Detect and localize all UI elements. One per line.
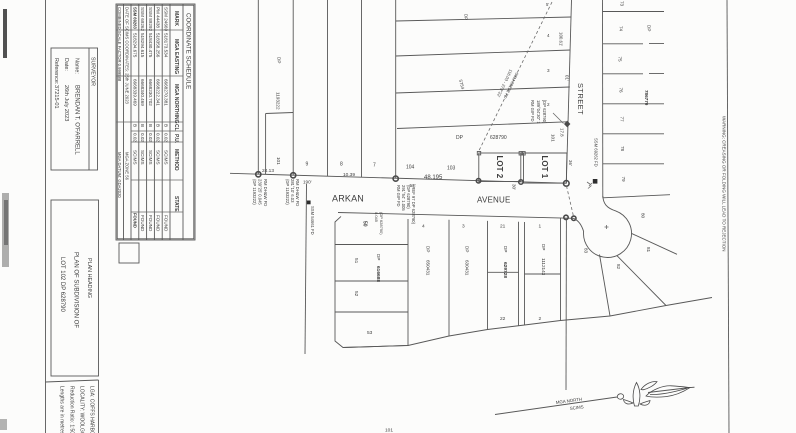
- svg-text:52: 52: [353, 291, 359, 297]
- svg-text:MGA ZONE 56: MGA ZONE 56: [125, 152, 130, 181]
- svg-text:(DP 628790): (DP 628790): [406, 185, 411, 209]
- svg-text:77: 77: [620, 117, 625, 123]
- svg-text:LOT 102 DP 628790: LOT 102 DP 628790: [59, 257, 65, 312]
- svg-text:291°54' 1.005: 291°54' 1.005: [401, 185, 406, 211]
- svg-text:5': 5': [546, 2, 549, 7]
- svg-text:DP: DP: [541, 244, 546, 250]
- svg-text:DP: DP: [464, 14, 469, 20]
- svg-text:5754: 5754: [458, 79, 466, 90]
- svg-text:Name:: Name:: [74, 58, 80, 74]
- svg-text:21: 21: [500, 224, 506, 230]
- svg-text:MARK: MARK: [173, 11, 179, 26]
- svg-text:1: 1: [539, 224, 542, 230]
- svg-text:53: 53: [367, 330, 373, 336]
- svg-text:SCIMS: SCIMS: [569, 404, 584, 411]
- svg-text:SCIMS: SCIMS: [132, 150, 137, 165]
- svg-text:LOT 1: LOT 1: [540, 156, 549, 179]
- svg-text:Reduction Ratio: 1:500: Reduction Ratio: 1:500: [69, 386, 75, 433]
- svg-text:10.39: 10.39: [343, 172, 355, 178]
- svg-text:0.02: 0.02: [164, 133, 169, 142]
- svg-text:4: 4: [422, 224, 425, 230]
- svg-text:STREET: STREET: [576, 83, 585, 115]
- svg-text:101: 101: [551, 134, 556, 142]
- svg-text:650431: 650431: [426, 260, 431, 276]
- svg-text:81: 81: [646, 247, 651, 253]
- svg-text:518294.615: 518294.615: [140, 33, 145, 58]
- svg-text:100.61': 100.61': [559, 32, 564, 46]
- svg-text:104: 104: [406, 165, 415, 171]
- svg-text:7: 7: [373, 163, 376, 169]
- svg-text:6668340.469: 6668340.469: [140, 79, 145, 106]
- svg-text:SCIMS: SCIMS: [164, 150, 169, 165]
- svg-text:82: 82: [616, 264, 621, 270]
- svg-text:239°25' 0.045: 239°25' 0.045: [258, 179, 263, 205]
- svg-text:MGA NORTHING: MGA NORTHING: [173, 84, 179, 124]
- svg-text:189°04'30" 1: 189°04'30" 1: [536, 100, 541, 124]
- svg-text:0.02: 0.02: [156, 133, 161, 142]
- svg-text:WARNING: CREASING OR FOLDING W: WARNING: CREASING OR FOLDING WILL LEAD T…: [722, 116, 727, 252]
- svg-text:MGA DATUM: GDA2020: MGA DATUM: GDA2020: [117, 152, 122, 198]
- svg-text:PLAN OF SUBDIVISION OF: PLAN OF SUBDIVISION OF: [72, 252, 78, 328]
- svg-text:PLAN HEADING: PLAN HEADING: [86, 258, 92, 298]
- svg-text:73: 73: [620, 1, 625, 7]
- svg-text:3: 3: [547, 68, 550, 73]
- svg-text:SCIMS: SCIMS: [156, 150, 161, 165]
- svg-text:190': 190': [303, 180, 312, 185]
- svg-text:6668270.381: 6668270.381: [164, 79, 169, 106]
- svg-text:DP: DP: [647, 25, 652, 31]
- svg-text:101: 101: [276, 157, 281, 165]
- svg-text:SSM 89292: SSM 89292: [148, 7, 153, 31]
- svg-text:17.8: 17.8: [560, 128, 565, 137]
- svg-text:4: 4: [547, 33, 550, 38]
- svg-text:Lengths are in metres.: Lengths are in metres.: [59, 386, 65, 433]
- svg-text:DP: DP: [277, 57, 282, 63]
- svg-text:76: 76: [619, 88, 624, 94]
- svg-text:6668339.469: 6668339.469: [132, 79, 137, 106]
- svg-text:78: 78: [620, 146, 625, 152]
- svg-text:SSM 69263: SSM 69263: [132, 7, 137, 30]
- svg-text:(REF 97 DP 628790): (REF 97 DP 628790): [411, 185, 416, 225]
- svg-text:1193222: 1193222: [276, 92, 281, 110]
- svg-text:FOUND: FOUND: [148, 215, 153, 232]
- svg-text:Reference:: Reference:: [53, 58, 59, 84]
- svg-text:RM GIP FD: RM GIP FD: [530, 100, 535, 122]
- svg-text:SURVEYOR: SURVEYOR: [89, 57, 95, 86]
- svg-text:9: 9: [306, 162, 309, 168]
- svg-text:B: B: [132, 124, 137, 127]
- svg-text:FOUND: FOUND: [140, 215, 145, 232]
- svg-text:50: 50: [362, 221, 368, 227]
- svg-text:FOUND: FOUND: [132, 213, 137, 228]
- svg-text:CL: CL: [173, 124, 179, 131]
- svg-text:BRENDAN T. O'FARRELL: BRENDAN T. O'FARRELL: [73, 85, 79, 155]
- svg-text:786779: 786779: [644, 90, 649, 106]
- svg-text:616688: 616688: [375, 266, 381, 282]
- svg-text:01': 01': [565, 75, 570, 81]
- svg-text:0.02: 0.02: [132, 133, 137, 142]
- svg-text:STATE: STATE: [173, 196, 179, 212]
- svg-text:2: 2: [539, 316, 542, 322]
- svg-text:22: 22: [500, 316, 506, 322]
- svg-text:DATE OF SCIMS COORDINATES: 25t: DATE OF SCIMS COORDINATES: 25th JUNE 202…: [125, 7, 130, 105]
- svg-text:518173.534: 518173.534: [164, 33, 169, 58]
- svg-text:FOUND: FOUND: [164, 215, 169, 232]
- svg-text:37215-01: 37215-01: [53, 85, 59, 109]
- svg-text:629728: 629728: [502, 262, 508, 278]
- svg-text:COORDINATE SCHEDULE: COORDINATE SCHEDULE: [185, 13, 192, 89]
- svg-text:SCIMS: SCIMS: [140, 150, 145, 165]
- svg-text:SSM 24669: SSM 24669: [164, 7, 169, 31]
- svg-text:DP: DP: [465, 246, 470, 252]
- svg-text:83: 83: [584, 248, 589, 254]
- svg-text:36': 36': [568, 160, 573, 166]
- svg-text:B: B: [148, 124, 153, 127]
- svg-text:MGA EASTING: MGA EASTING: [173, 39, 179, 74]
- svg-text:RM GIP FD: RM GIP FD: [396, 185, 401, 207]
- svg-text:26th July 2023: 26th July 2023: [63, 85, 69, 121]
- svg-text:RM DH&W FD: RM DH&W FD: [263, 179, 268, 206]
- svg-text:DP: DP: [503, 246, 508, 252]
- svg-text:METHOD: METHOD: [173, 149, 179, 171]
- svg-text:3: 3: [462, 224, 465, 230]
- svg-text:SSM 69262 FD: SSM 69262 FD: [594, 138, 599, 167]
- svg-text:103: 103: [447, 166, 456, 172]
- svg-text:DP: DP: [426, 246, 431, 252]
- svg-text:FOUND: FOUND: [156, 215, 161, 232]
- svg-text:24.13: 24.13: [262, 168, 274, 174]
- svg-text:80: 80: [641, 213, 646, 219]
- svg-text:COMBINED SCALE FACTOR 0.999588: COMBINED SCALE FACTOR 0.999588: [117, 7, 122, 82]
- svg-text:(DP 1193222): (DP 1193222): [252, 179, 257, 205]
- svg-text:SSM 69262: SSM 69262: [140, 7, 145, 31]
- svg-text:518358.256: 518358.256: [156, 33, 161, 58]
- svg-text:79: 79: [621, 177, 626, 183]
- svg-text:0.02: 0.02: [148, 133, 153, 142]
- svg-text:Date:: Date:: [63, 58, 69, 71]
- svg-text:SCIMS: SCIMS: [148, 150, 153, 165]
- svg-text:48.195: 48.195: [424, 175, 443, 181]
- svg-text:101: 101: [385, 428, 393, 433]
- svg-text:B: B: [164, 124, 169, 127]
- svg-text:75: 75: [618, 57, 623, 63]
- svg-text:51: 51: [353, 258, 359, 264]
- svg-text:LGA: COFFS HARBOUR CITY: LGA: COFFS HARBOUR CITY: [89, 386, 95, 433]
- svg-text:628790: 628790: [490, 135, 507, 141]
- svg-text:518294.675: 518294.675: [132, 33, 137, 58]
- svg-text:518430.475: 518430.475: [148, 33, 153, 58]
- svg-text:6668230.702: 6668230.702: [148, 79, 153, 106]
- svg-text:74: 74: [619, 26, 624, 32]
- svg-text:SSM 54661 FD: SSM 54661 FD: [310, 206, 315, 235]
- svg-text:DP: DP: [376, 254, 381, 260]
- svg-text:0.045: 0.045: [374, 212, 379, 223]
- svg-text:AVENUE: AVENUE: [477, 196, 511, 205]
- svg-text:630431: 630431: [465, 260, 470, 276]
- svg-text:0.02: 0.02: [140, 133, 145, 142]
- svg-text:[DP 628790]: [DP 628790]: [542, 100, 547, 123]
- svg-text:1112143: 1112143: [541, 258, 546, 276]
- svg-text:P.U.: P.U.: [173, 134, 179, 144]
- svg-text:LOT 2: LOT 2: [495, 156, 504, 179]
- svg-text:PM 44438: PM 44438: [156, 7, 161, 28]
- svg-text:DP: DP: [456, 135, 464, 141]
- svg-text:LOCALITY: WOOLGOOLGA: LOCALITY: WOOLGOOLGA: [79, 386, 85, 433]
- svg-text:ARKAN: ARKAN: [332, 194, 364, 204]
- svg-text:6668222.341: 6668222.341: [156, 79, 161, 106]
- svg-text:30': 30': [512, 184, 517, 190]
- svg-text:8: 8: [340, 162, 343, 168]
- svg-text:B: B: [156, 124, 161, 127]
- svg-text:(DP 1193222): (DP 1193222): [285, 179, 290, 205]
- svg-text:B: B: [140, 124, 145, 127]
